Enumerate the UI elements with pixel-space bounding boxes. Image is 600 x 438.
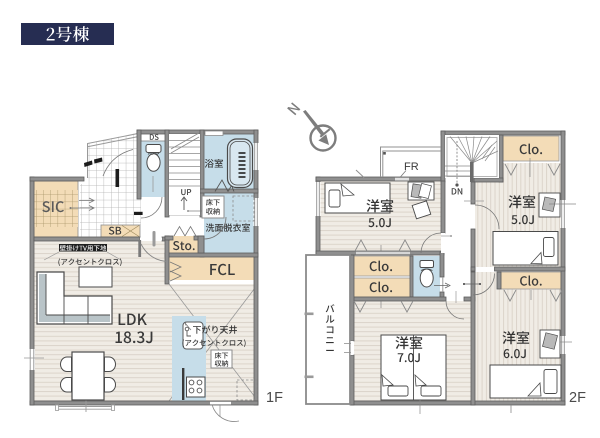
svg-text:2F: 2F [569,390,586,406]
svg-text:FR: FR [404,161,419,173]
svg-text:1F: 1F [266,390,283,406]
